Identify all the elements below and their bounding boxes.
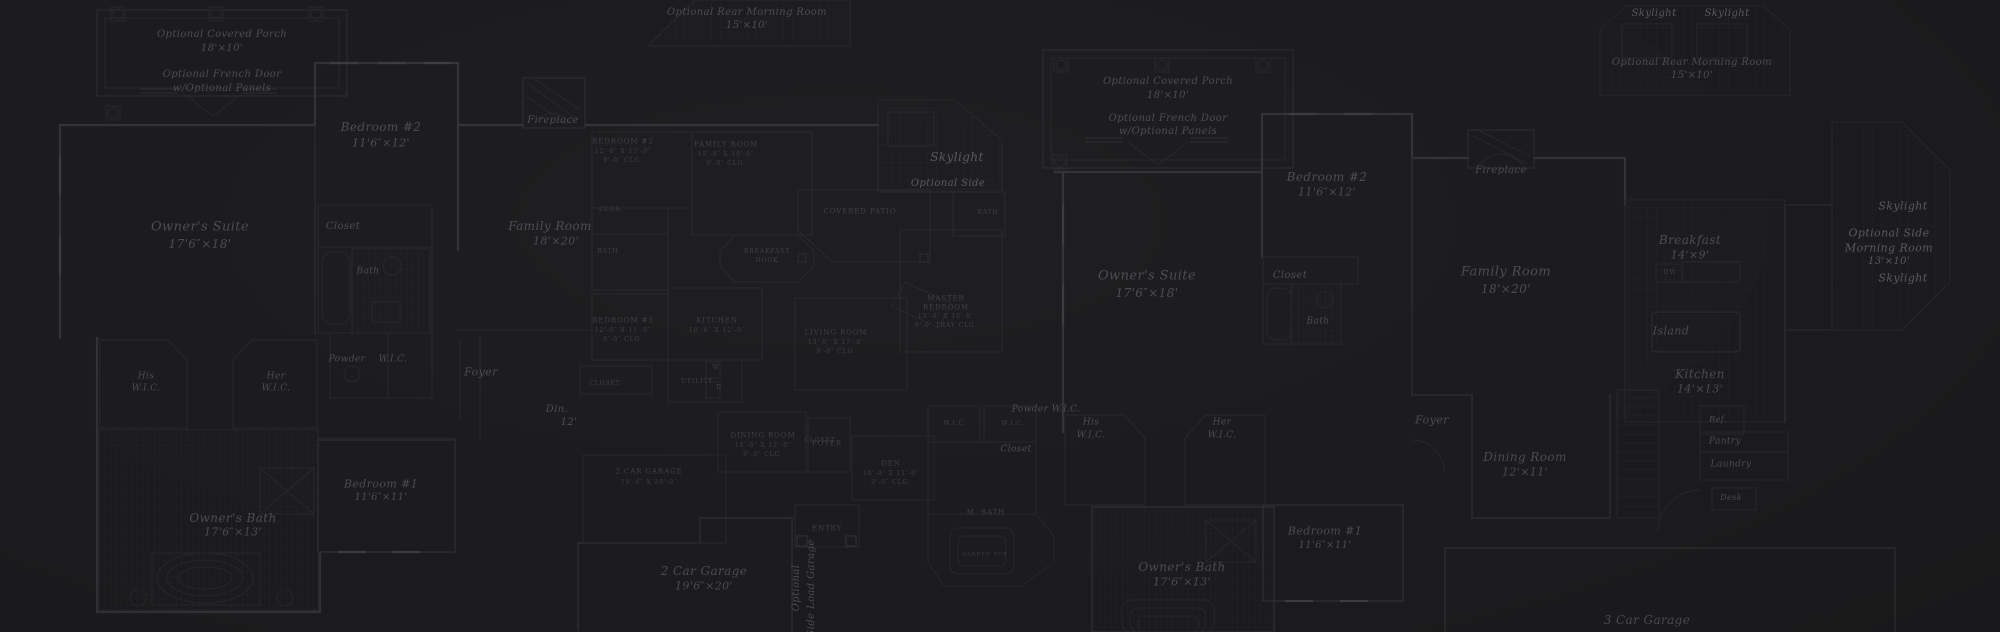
c-frenchdoor-line2: w/Optional Panels <box>1119 127 1217 137</box>
b-family-1: FAMILY ROOM <box>694 142 758 149</box>
b-master-1: MASTER <box>927 296 964 303</box>
c-kitchen-dim: 14'×13' <box>1677 384 1723 395</box>
b-bedroom2-3: 9'-0″ CLG. <box>603 158 643 164</box>
a-family-room-dim: 18'×20' <box>533 236 579 247</box>
a-foyer: Foyer <box>464 367 498 378</box>
a-wic: W.I.C. <box>379 356 408 365</box>
a-garage-name: 2 Car Garage <box>661 565 748 577</box>
b-den-2: 10'-0″ X 11'-0″ <box>863 471 919 477</box>
c-porch-line2: 18'×10' <box>1147 91 1189 101</box>
ab-rear-morning-1: Optional Rear Morning Room <box>667 8 827 18</box>
b-bedroom3-2: 12'-0″ X 11'-0″ <box>595 328 651 334</box>
c-garage: 3 Car Garage <box>1604 614 1691 626</box>
c-owners-bath-dim: 17'6″×13' <box>1153 577 1211 588</box>
c-side-morning-2: Morning Room <box>1845 243 1933 254</box>
a-entry: ENTRY <box>812 526 842 533</box>
a-frenchdoor-line1: Optional French Door <box>163 70 282 80</box>
c-skylight-lower: Skylight <box>1878 273 1927 284</box>
labels-layer: Optional Covered Porch18'×10'Optional Fr… <box>0 0 2000 632</box>
a-his-wic-2: W.I.C. <box>132 385 161 394</box>
b-den-1: DEN <box>881 461 901 468</box>
c-laundry: Laundry <box>1711 461 1752 470</box>
c-owners-suite-name: Owner's Suite <box>1098 270 1196 283</box>
ab-rear-morning-2: 15'×10' <box>726 21 768 31</box>
b-bedroom3-3: 9'-0″ CLG. <box>603 337 643 343</box>
c-dw: DW <box>1664 270 1677 276</box>
b-master-4: 9'-0″ TRAY CLG. <box>915 323 978 329</box>
b-nook-2: NOOK <box>755 258 778 264</box>
b-utility: UTILITY <box>681 379 713 385</box>
b-family-3: 9'-0″ CLG. <box>706 161 746 167</box>
b-dining-2: 10'-0″ X 12'-0″ <box>735 443 791 449</box>
b-closet2: CLOSET <box>804 438 835 444</box>
c-skylight-upper: Skylight <box>1878 201 1927 212</box>
b-master-3: 13'-0″ X 16'-0″ <box>918 314 974 320</box>
b-master-2: BEDROOM <box>923 305 969 312</box>
c-bedroom1-dim: 11'6″×11' <box>1298 541 1351 551</box>
b-washer: W <box>712 365 719 371</box>
a-garage-dim: 19'6″×20' <box>675 581 733 592</box>
c-rear-morning-1: Optional Rear Morning Room <box>1612 58 1772 68</box>
c-family-room-dim: 18'×20' <box>1481 283 1531 295</box>
a-fireplace: Fireplace <box>527 116 579 126</box>
a-owners-suite-name: Owner's Suite <box>151 221 249 234</box>
b-living-1: LIVING ROOM <box>805 330 868 337</box>
c-side-morning-1: Optional Side <box>1848 228 1929 239</box>
floorplan-montage: Optional Covered Porch18'×10'Optional Fr… <box>0 0 2000 632</box>
b-dryer: D <box>716 385 722 391</box>
b-family-2: 15'-0″ X 19'-0″ <box>698 152 754 158</box>
b-nook-1: BREAKFAST <box>744 249 790 255</box>
c-her-wic-1: Her <box>1213 419 1232 428</box>
c-his-wic-2: W.I.C. <box>1077 432 1106 441</box>
a-bedroom2-dim: 11'6″×12' <box>352 138 410 149</box>
b-dining-3: 9'-0″ CLG. <box>743 452 783 458</box>
a-bedroom1-dim: 11'6″×11' <box>354 493 407 503</box>
c-breakfast-dim: 14'×9' <box>1671 250 1710 261</box>
b-wic-right: W.I.C. <box>1002 421 1025 427</box>
a-sideload-2: Side Load Garage <box>807 539 817 632</box>
c-porch-line1: Optional Covered Porch <box>1103 77 1233 87</box>
c-wic: W.I.C. <box>1052 406 1081 415</box>
a-bedroom2-name: Bedroom #2 <box>341 121 422 133</box>
c-foyer: Foyer <box>1415 415 1449 426</box>
a-her-wic-1: Her <box>267 373 286 382</box>
c-bedroom1-name: Bedroom #1 <box>1288 526 1362 537</box>
c-island: Island <box>1653 326 1690 337</box>
a-owners-suite-dim: 17'6″×18' <box>169 238 232 250</box>
b-kitchen-1: KITCHEN <box>696 318 738 325</box>
c-bedroom2-name: Bedroom #2 <box>1287 171 1368 183</box>
a-powder: Powder <box>329 356 366 365</box>
a-skylight: Skylight <box>930 151 983 163</box>
c-ref: Ref. <box>1709 416 1727 424</box>
c-frenchdoor-line1: Optional French Door <box>1109 114 1228 124</box>
c-dining-dim: 12'×11' <box>1502 467 1548 478</box>
c-dining-name: Dining Room <box>1483 451 1567 463</box>
a-her-wic-2: W.I.C. <box>262 385 291 394</box>
b-covered-patio: COVERED PATIO <box>824 209 897 216</box>
a-sideload-1: Optional <box>792 565 802 612</box>
b-garage-2: 19'-6″ X 20'-0″ <box>621 480 677 486</box>
c-her-wic-2: W.I.C. <box>1208 432 1237 441</box>
b-clos: CLOS. <box>599 207 623 213</box>
c-family-room-name: Family Room <box>1461 266 1551 279</box>
c-roof-skylight-1: Skylight <box>1631 9 1676 19</box>
b-closet: CLOSET <box>589 381 620 387</box>
b-living-2: 13'-0″ X 17'-0″ <box>808 340 864 346</box>
b-garage-1: 2 CAR GARAGE <box>615 469 682 476</box>
c-breakfast-name: Breakfast <box>1659 234 1721 246</box>
c-rear-morning-2: 15'×10' <box>1671 71 1713 81</box>
c-roof-skylight-2: Skylight <box>1704 9 1749 19</box>
c-owners-bath-name: Owner's Bath <box>1138 561 1225 573</box>
a-dining-frag-1: Din. <box>546 405 568 415</box>
b-kitchen-2: 10'-0″ X 12'-0″ <box>689 328 745 334</box>
b-bath: BATH <box>597 249 618 255</box>
a-optional-side: Optional Side <box>911 179 985 189</box>
a-bedroom1-name: Bedroom #1 <box>344 479 418 490</box>
c-desk: Desk <box>1720 494 1742 502</box>
b-wic-left: W.I.C. <box>944 421 967 427</box>
a-owners-bath-dim: 17'6″×13' <box>204 527 262 538</box>
b-mbath: M. BATH <box>967 510 1006 517</box>
a-frenchdoor-line2: w/Optional Panels <box>173 84 271 94</box>
b-bedroom3-1: BEDROOM #3 <box>592 318 653 325</box>
c-bath: Bath <box>1307 318 1330 327</box>
c-side-morning-3: 13'×10' <box>1868 257 1910 267</box>
a-bath: Bath <box>357 268 380 277</box>
a-dining-frag-2: 12' <box>561 418 578 428</box>
c-kitchen-name: Kitchen <box>1675 368 1725 380</box>
a-his-wic-1: His <box>138 373 155 382</box>
c-fireplace: Fireplace <box>1475 166 1527 176</box>
b-bedroom2-2: 12'-0″ X 13'-0″ <box>595 149 651 155</box>
b-garden-tub: GARDEN TUB <box>962 553 1007 558</box>
b-den-3: 9'-0″ CLG. <box>871 480 911 486</box>
a-owners-bath-name: Owner's Bath <box>189 512 276 524</box>
c-closet: Closet <box>1273 271 1307 281</box>
c-owners-suite-dim: 17'6″×18' <box>1116 287 1179 299</box>
a-porch-line2: 18'×10' <box>201 44 243 54</box>
b-dining-1: DINING ROOM <box>730 433 795 440</box>
b-living-3: 9'-0″ CLG. <box>816 349 856 355</box>
c-closet2: Closet <box>1000 446 1031 455</box>
a-porch-line1: Optional Covered Porch <box>157 30 287 40</box>
c-his-wic-1: His <box>1083 419 1100 428</box>
c-pantry: Pantry <box>1709 438 1741 447</box>
b-bath2: BATH <box>977 210 998 216</box>
c-bedroom2-dim: 11'6″×12' <box>1298 187 1356 198</box>
c-powder: Powder <box>1012 406 1049 415</box>
b-bedroom2-1: BEDROOM #2 <box>592 139 653 146</box>
a-closet: Closet <box>326 222 360 232</box>
a-family-room-name: Family Room <box>508 220 592 232</box>
